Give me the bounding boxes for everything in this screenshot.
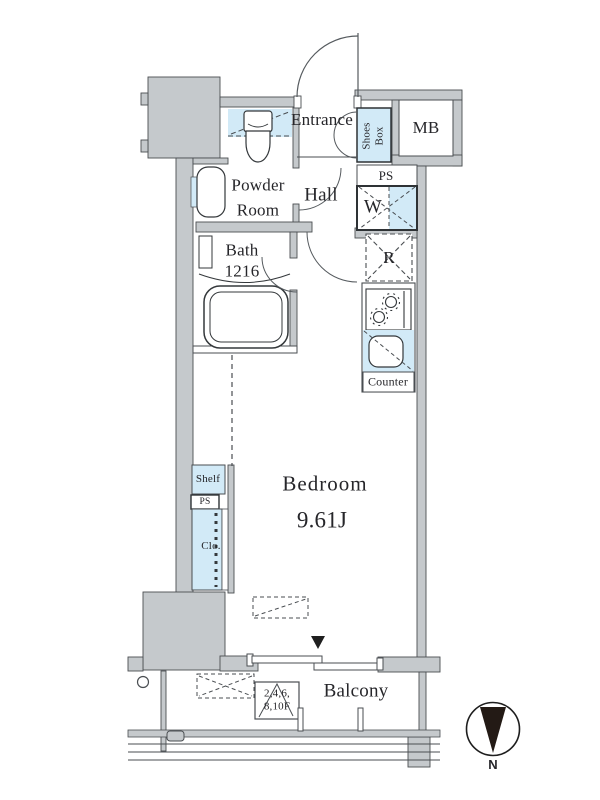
shelf-label: Shelf <box>196 474 220 486</box>
door-jambs <box>294 96 361 108</box>
balcony-label: Balcony <box>324 682 389 703</box>
stove-icon <box>366 289 411 330</box>
hall-bedroom-door-arc <box>307 232 357 282</box>
floor-plan: Entrance Hall ShoesBox MB PS W R Counter… <box>0 0 600 800</box>
pipe-space-upper-label: PS <box>379 169 394 183</box>
sink-icon <box>363 330 414 372</box>
bath-label: Bath1216 <box>225 240 260 281</box>
counter-label: Counter <box>368 376 408 389</box>
compass-north-label: N <box>488 758 498 772</box>
washer-label: W <box>364 198 382 219</box>
meter-box-label: MB <box>413 119 440 137</box>
powder-room-label: PowderRoom <box>231 173 284 222</box>
bedroom-label: Bedroom <box>282 473 367 496</box>
closet-label: Clo. <box>201 541 220 553</box>
sliding-window <box>247 654 383 670</box>
washbasin-icon <box>191 167 225 217</box>
refrigerator-label: R <box>383 249 395 267</box>
shoes-box-label: ShoesBox <box>361 122 388 149</box>
balcony-ac-unit-dashed <box>197 674 254 698</box>
bedroom-size-label: 9.61J <box>297 509 347 534</box>
toilet-icon <box>244 111 272 162</box>
pipe-space-lower-label: PS <box>200 497 211 507</box>
entrance-label: Entrance <box>291 111 353 129</box>
window-center-marker <box>311 636 325 649</box>
furniture-outline-dashed <box>253 597 308 618</box>
floors-label: 2,4,6,8,10F <box>264 688 290 715</box>
compass-icon <box>467 703 520 756</box>
hall-label: Hall <box>304 186 338 207</box>
entrance-door <box>297 33 358 97</box>
